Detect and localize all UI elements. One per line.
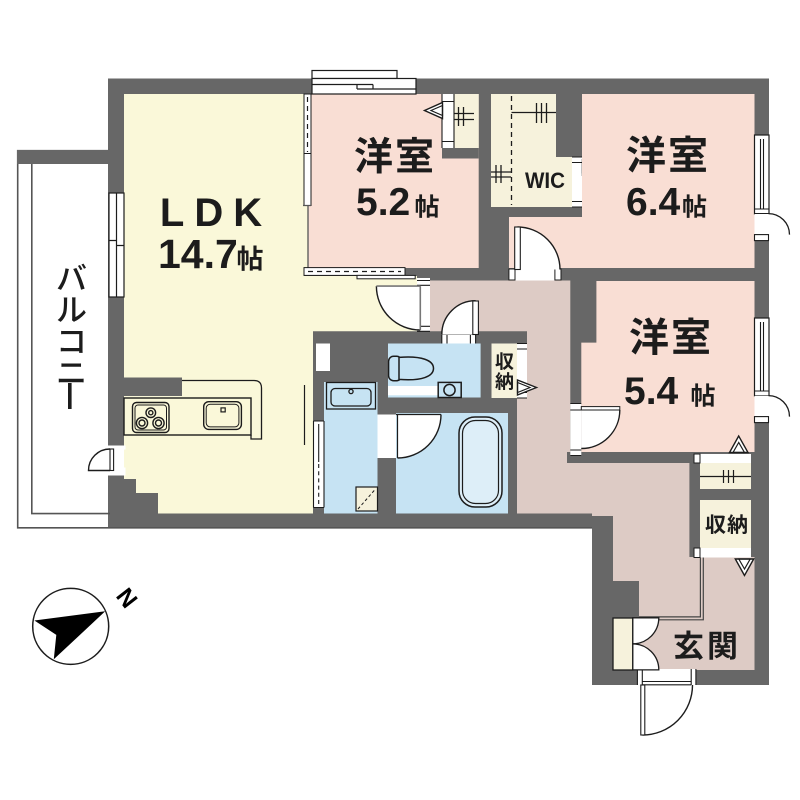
- svg-text:WIC: WIC: [525, 168, 565, 193]
- svg-text:5.4: 5.4: [624, 370, 679, 413]
- svg-text:14.7: 14.7: [158, 231, 238, 277]
- svg-text:5.2: 5.2: [356, 181, 410, 224]
- svg-text:LDK: LDK: [160, 191, 272, 235]
- svg-text:6.4: 6.4: [626, 181, 681, 224]
